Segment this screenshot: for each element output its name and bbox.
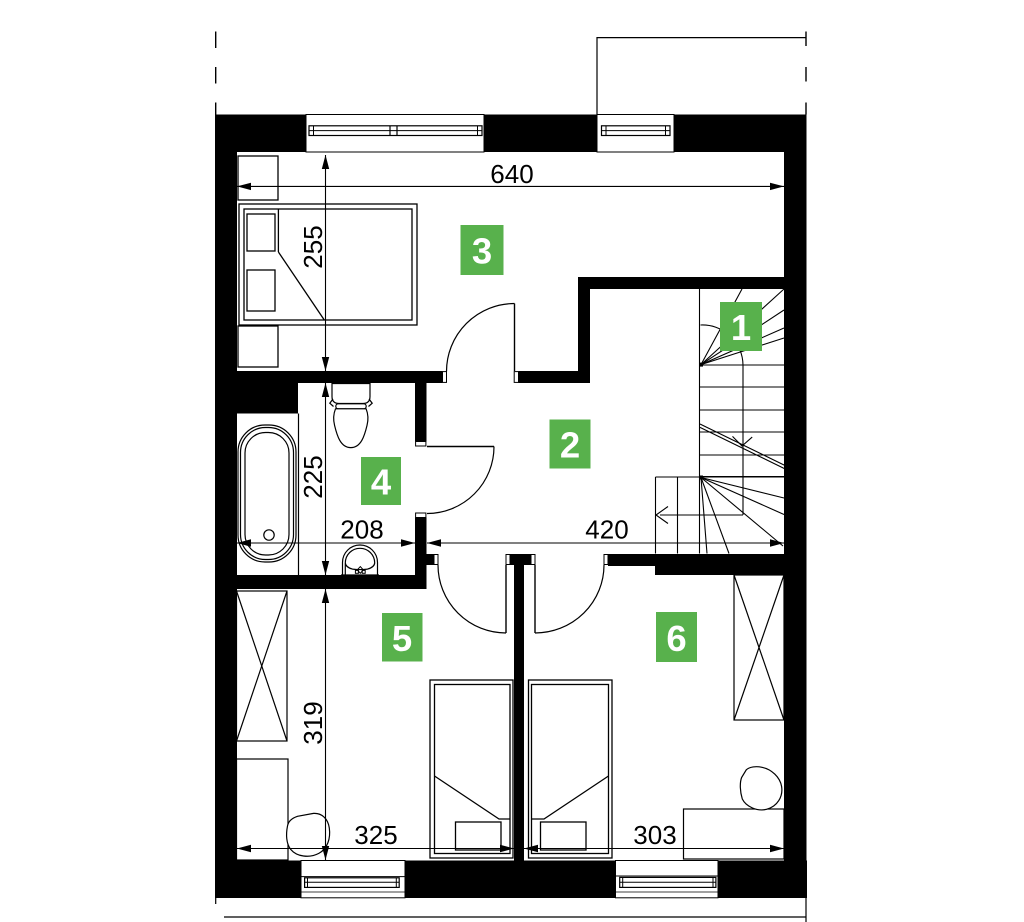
svg-text:640: 640 <box>490 159 533 189</box>
svg-text:6: 6 <box>666 618 686 659</box>
svg-text:255: 255 <box>298 225 328 268</box>
svg-text:5: 5 <box>392 618 412 659</box>
svg-text:225: 225 <box>298 455 328 498</box>
svg-text:325: 325 <box>354 820 397 850</box>
svg-text:2: 2 <box>560 425 580 466</box>
svg-text:4: 4 <box>371 462 392 503</box>
svg-text:420: 420 <box>585 515 628 545</box>
svg-text:1: 1 <box>731 307 751 348</box>
svg-text:3: 3 <box>472 231 492 272</box>
svg-text:303: 303 <box>633 820 676 850</box>
svg-text:208: 208 <box>340 515 383 545</box>
svg-text:319: 319 <box>298 701 328 744</box>
